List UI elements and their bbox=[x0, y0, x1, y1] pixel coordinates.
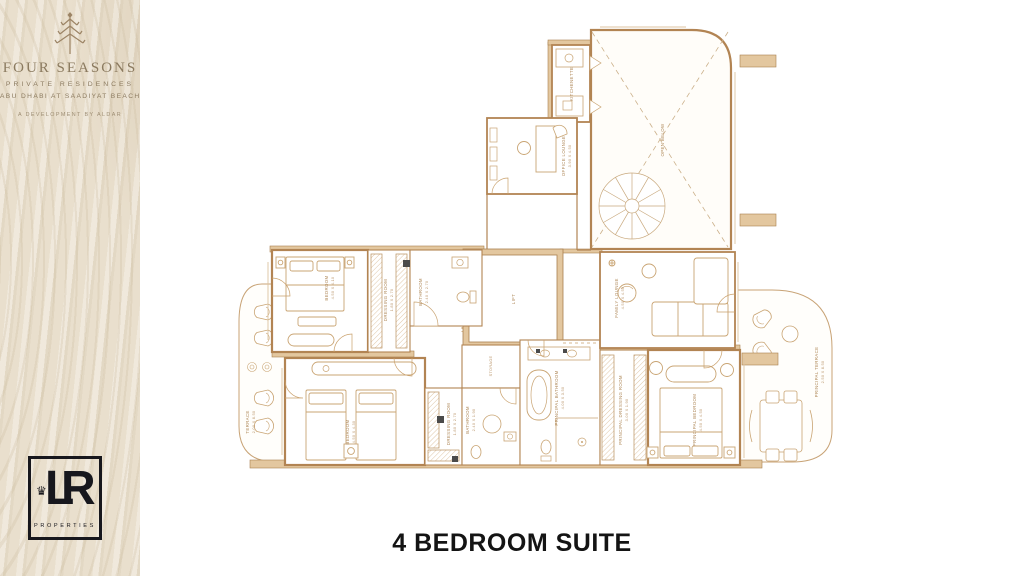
label-family-lounge-dim: 4.50 X 4.50 bbox=[620, 286, 625, 309]
four-seasons-tree-icon bbox=[51, 10, 89, 56]
four-seasons-logo: FOUR SEASONS PRIVATE RESIDENCES ABU DHAB… bbox=[0, 10, 140, 118]
label-principal-bathroom: PRINCIPAL BATHROOM bbox=[554, 370, 559, 425]
room-bathroom-2: BATHROOM 2.40 X 2.70 bbox=[403, 250, 482, 326]
label-bedroom-3-dim: 4.50 X 4.30 bbox=[351, 420, 356, 443]
label-bathroom-2: BATHROOM bbox=[418, 278, 423, 306]
label-principal-terrace-dim: 2.50 X 8.50 bbox=[820, 360, 825, 383]
label-open-below: OPEN BELOW bbox=[660, 123, 665, 157]
label-principal-dressing-dim: 3.00 X 1.90 bbox=[624, 398, 629, 421]
label-kitchenette: KITCHENETTE bbox=[569, 67, 574, 101]
label-principal-terrace: PRINCIPAL TERRACE bbox=[814, 347, 819, 398]
label-dressing-2: DRESSING ROOM bbox=[383, 279, 388, 321]
four-seasons-name: FOUR SEASONS bbox=[0, 60, 140, 77]
label-principal-bedroom-dim: 4.50 X 4.50 bbox=[698, 408, 703, 431]
terrace-principal: PRINCIPAL TERRACE 2.50 X 8.50 bbox=[738, 290, 832, 462]
corridor-walls bbox=[487, 194, 591, 252]
label-dressing-2-dim: 1.80 X 2.70 bbox=[389, 288, 394, 311]
room-bedroom-2: BEDROOM 4.50 X 4.10 bbox=[268, 250, 368, 352]
room-storage: STORAGE bbox=[462, 345, 520, 388]
label-bedroom-3: BEDROOM bbox=[345, 419, 350, 444]
label-bathroom-3-dim: 2.40 X 1.90 bbox=[471, 408, 476, 431]
room-principal-dressing: PRINCIPAL DRESSING ROOM 3.00 X 1.90 bbox=[600, 350, 648, 465]
label-terrace-dim: 2.00 X 8.50 bbox=[251, 410, 256, 433]
label-lift: LIFT bbox=[511, 294, 516, 304]
room-family-lounge: FAMILY LOUNGE 4.50 X 4.50 bbox=[600, 252, 738, 348]
label-principal-dressing: PRINCIPAL DRESSING ROOM bbox=[618, 375, 623, 445]
room-dressing-3: DRESSING ROOM 1.80 X 2.70 bbox=[425, 388, 462, 465]
lr-monogram-r: R bbox=[61, 465, 96, 513]
label-principal-bedroom: PRINCIPAL BEDROOM bbox=[692, 394, 697, 447]
room-bathroom-3: BATHROOM 2.40 X 1.90 bbox=[452, 388, 520, 465]
label-family-lounge: FAMILY LOUNGE bbox=[614, 278, 619, 318]
label-bedroom-2-dim: 4.50 X 4.10 bbox=[330, 276, 335, 299]
four-seasons-subtitle: PRIVATE RESIDENCES bbox=[0, 81, 140, 88]
label-bedroom-2: BEDROOM bbox=[324, 275, 329, 300]
room-principal-bedroom: PRINCIPAL BEDROOM 4.50 X 4.50 bbox=[647, 350, 744, 465]
page: { "branding": { "four_seasons": { "name"… bbox=[0, 0, 1024, 576]
lr-monogram: L R ♛ bbox=[31, 463, 99, 521]
label-dressing-3: DRESSING ROOM bbox=[446, 403, 451, 445]
lr-properties-logo: L R ♛ PROPERTIES bbox=[28, 456, 102, 540]
label-terrace: TERRACE bbox=[245, 410, 250, 433]
room-principal-bathroom: PRINCIPAL BATHROOM 4.00 X 3.50 bbox=[520, 340, 600, 465]
floor-plan: TERRACE 2.00 X 8.50 PRINCIPAL TERRACE 2.… bbox=[0, 0, 1024, 576]
crown-icon: ♛ bbox=[36, 485, 47, 497]
four-seasons-developer: A DEVELOPMENT BY ALDAR bbox=[0, 112, 140, 118]
page-title: 4 BEDROOM SUITE bbox=[0, 529, 1024, 558]
label-office-lounge: OFFICE LOUNGE bbox=[561, 136, 566, 176]
room-office-lounge: OFFICE LOUNGE 3.90 X 4.50 bbox=[487, 118, 577, 194]
spiral-stair-icon bbox=[599, 173, 665, 239]
label-dressing-3-dim: 1.80 X 2.70 bbox=[452, 412, 457, 435]
room-bedroom-3: BEDROOM 4.50 X 4.30 bbox=[282, 358, 425, 465]
four-seasons-location: ABU DHABI AT SAADIYAT BEACH bbox=[0, 93, 140, 100]
label-bathroom-2-dim: 2.40 X 2.70 bbox=[424, 280, 429, 303]
label-bathroom-3: BATHROOM bbox=[465, 406, 470, 434]
label-principal-bathroom-dim: 4.00 X 3.50 bbox=[560, 386, 565, 409]
label-office-lounge-dim: 3.90 X 4.50 bbox=[567, 144, 572, 167]
sidebar: FOUR SEASONS PRIVATE RESIDENCES ABU DHAB… bbox=[0, 0, 140, 576]
label-storage: STORAGE bbox=[488, 356, 493, 377]
